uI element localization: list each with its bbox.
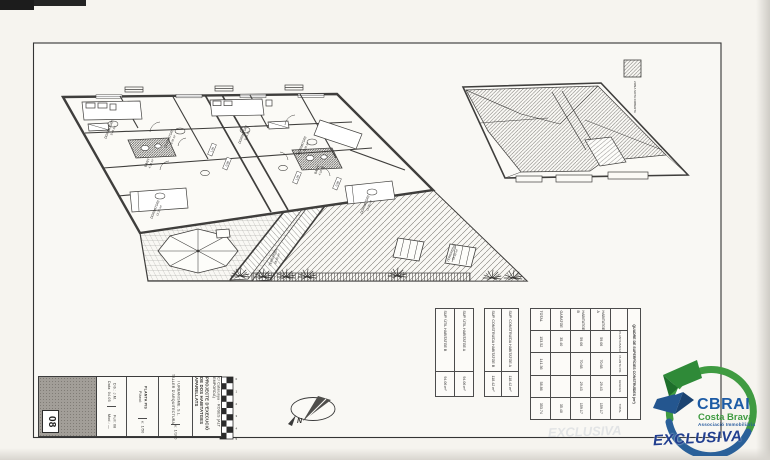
drawing-label: Plànol: <box>138 391 142 403</box>
parasol <box>158 229 238 273</box>
table-summary: QUADRE DE SUPERFÍCIES CONSTRUÏDES (m²) P… <box>530 308 641 420</box>
project-title: PROJECTE D'EXECUCIÓ DE DOS HABITATGES AP… <box>194 377 210 436</box>
rev-entry: Full: 08 <box>112 415 116 428</box>
pinwheel-icon <box>653 360 702 414</box>
title-block: 08 Data: 04.05 Dib.: J.M. Mod.: — Full: … <box>38 376 222 437</box>
row-header: GARATGE <box>551 309 571 331</box>
rev-entry: Data: 04.05 <box>107 381 111 402</box>
table-useful-surfaces: SUP. ÚTIL HABITATGE A 94.06 m² SUP. ÚTIL… <box>435 308 474 397</box>
table-cell: 59.06 <box>571 331 591 353</box>
legend-label: ZONA SOTA COBERTA <box>633 81 637 113</box>
project-cell: PROJECTE D'EXECUCIÓ DE DOS HABITATGES AP… <box>193 377 221 436</box>
table-cell: SUP. ÚTIL HABITATGE B <box>436 309 455 372</box>
row-header: TOTAL <box>531 309 551 331</box>
sheet-number-box: 08 <box>42 410 59 433</box>
col-header: TOTAL <box>611 397 628 419</box>
col-header: PLANTA BAIXA <box>611 331 628 353</box>
rev-entry: Mod.: — <box>107 414 111 429</box>
table-cell: 70.68 <box>591 353 611 375</box>
table-cell: 70.68 <box>571 353 591 375</box>
table-cell: 141.36 <box>531 353 551 375</box>
watermark: EXCLUSIVA <box>548 423 622 441</box>
table-title: QUADRE DE SUPERFÍCIES CONSTRUÏDES (m²) <box>628 309 641 420</box>
firm-line1: TALLER D'ARQUITECTURA <box>171 374 175 424</box>
table-cell: 35.40 <box>551 331 571 353</box>
firm-line2: I URBANISME, S.L. <box>176 381 180 416</box>
cbrai-logo: CBRAI Costa Brava Associació Immobiliàri… <box>645 352 770 456</box>
scanned-plan-sheet: DORMITORI 9.45 m² DORMITORI 8.70 m² BANY… <box>0 0 770 460</box>
table-cell: 29.43 <box>591 375 611 397</box>
firm-cell: TALLER D'ARQUITECTURA I URBANISME, S.L. … <box>159 377 193 436</box>
table-cell: 35.40 <box>551 397 571 419</box>
legend-swatch <box>624 60 641 77</box>
col-header <box>611 309 628 331</box>
table-cell <box>551 375 571 397</box>
row-header: HABITATGE A <box>591 309 611 331</box>
drawing-name: PLANTA PIS <box>143 386 147 409</box>
title-block-gray-band: 08 <box>39 377 97 436</box>
table-built-surfaces: SUP. CONSTRUÏDA HABITATGE A 118.42 m² SU… <box>484 308 519 397</box>
col-header: PLANTA PIS <box>611 353 628 375</box>
table-cell: SUP. CONSTRUÏDA HABITATGE B <box>485 309 502 372</box>
table-cell: SUP. ÚTIL HABITATGE A <box>455 309 474 372</box>
rev-entry: Dib.: J.M. <box>112 383 116 400</box>
logo-sub2-text: Associació Immobiliària <box>698 422 755 427</box>
table-cell: 159.17 <box>571 397 591 419</box>
table-cell: 94.06 m² <box>436 371 455 396</box>
scale-b: e: 1/100 <box>173 425 177 440</box>
table-cell: 153.52 <box>531 331 551 353</box>
table-cell: 29.43 <box>571 375 591 397</box>
table-cell: 58.86 <box>531 375 551 397</box>
row-header: HABITATGE B <box>571 309 591 331</box>
revision-cells: Data: 04.05 Dib.: J.M. Mod.: — Full: 08 <box>97 377 127 436</box>
project-address: C/ Catalunya · ROSES (ALT EMPORDÀ) <box>211 377 220 436</box>
scale-a: e: 1/50 <box>140 421 144 433</box>
table-cell: SUP. CONSTRUÏDA HABITATGE A <box>502 309 519 372</box>
col-header: GOLFES <box>611 375 628 397</box>
table-cell: 118.42 m² <box>502 371 519 396</box>
table-cell: 94.06 m² <box>455 371 474 396</box>
table-cell: 353.74 <box>531 397 551 419</box>
table-cell: 159.17 <box>591 397 611 419</box>
table-cell: 118.42 m² <box>485 371 502 396</box>
sheet-number: 08 <box>44 416 57 428</box>
table-cell <box>551 353 571 375</box>
drawing-name-cell: Plànol: PLANTA PIS e: 1/50 <box>127 377 159 436</box>
table-cell: 59.06 <box>591 331 611 353</box>
